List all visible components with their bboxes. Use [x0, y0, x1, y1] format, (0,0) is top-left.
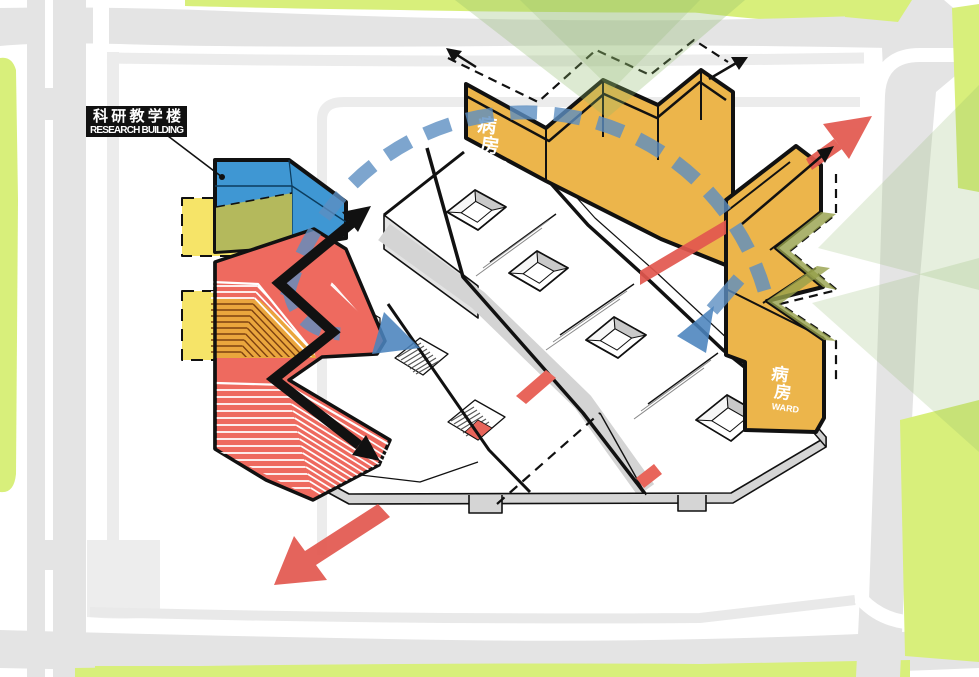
- svg-text:科研教学楼: 科研教学楼: [93, 107, 181, 125]
- svg-text:RESEARCH BUILDING: RESEARCH BUILDING: [90, 125, 184, 136]
- svg-text:房: 房: [773, 381, 793, 403]
- svg-text:房: 房: [479, 133, 501, 158]
